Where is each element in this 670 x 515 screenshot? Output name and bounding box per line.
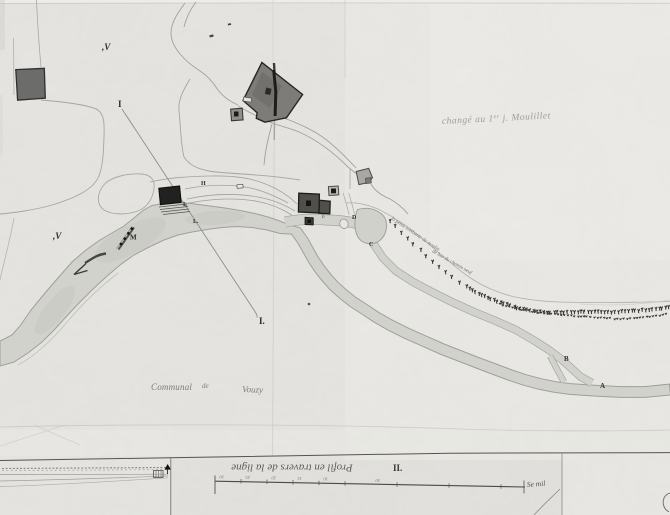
svg-text:Se mil: Se mil [527,479,546,489]
svg-text:30: 30 [219,475,224,480]
svg-text:25: 25 [245,475,250,480]
svg-text:15: 15 [297,476,302,481]
svg-text:I: I [118,99,122,109]
svg-text:A: A [600,382,605,390]
svg-text:D: D [352,215,357,221]
svg-text:II.: II. [393,463,402,473]
svg-text:Profil en travers de la ligne: Profil en travers de la ligne [231,462,354,474]
svg-text:M: M [130,234,137,242]
svg-text:L.: L. [193,219,199,225]
svg-text:,V: ,V [52,231,62,241]
svg-text:C: C [369,242,373,248]
svg-text:10: 10 [323,477,328,482]
svg-text:B: B [564,355,569,363]
svg-text:Vouzy: Vouzy [242,384,263,395]
svg-text:H: H [201,181,206,187]
svg-text:,V: ,V [101,42,111,52]
svg-text:Communal: Communal [151,382,192,392]
svg-text:L: L [183,202,187,208]
svg-text:20: 20 [271,476,276,481]
svg-text:I.: I. [259,316,265,326]
svg-text:50: 50 [375,478,380,483]
svg-text:de: de [202,382,209,390]
